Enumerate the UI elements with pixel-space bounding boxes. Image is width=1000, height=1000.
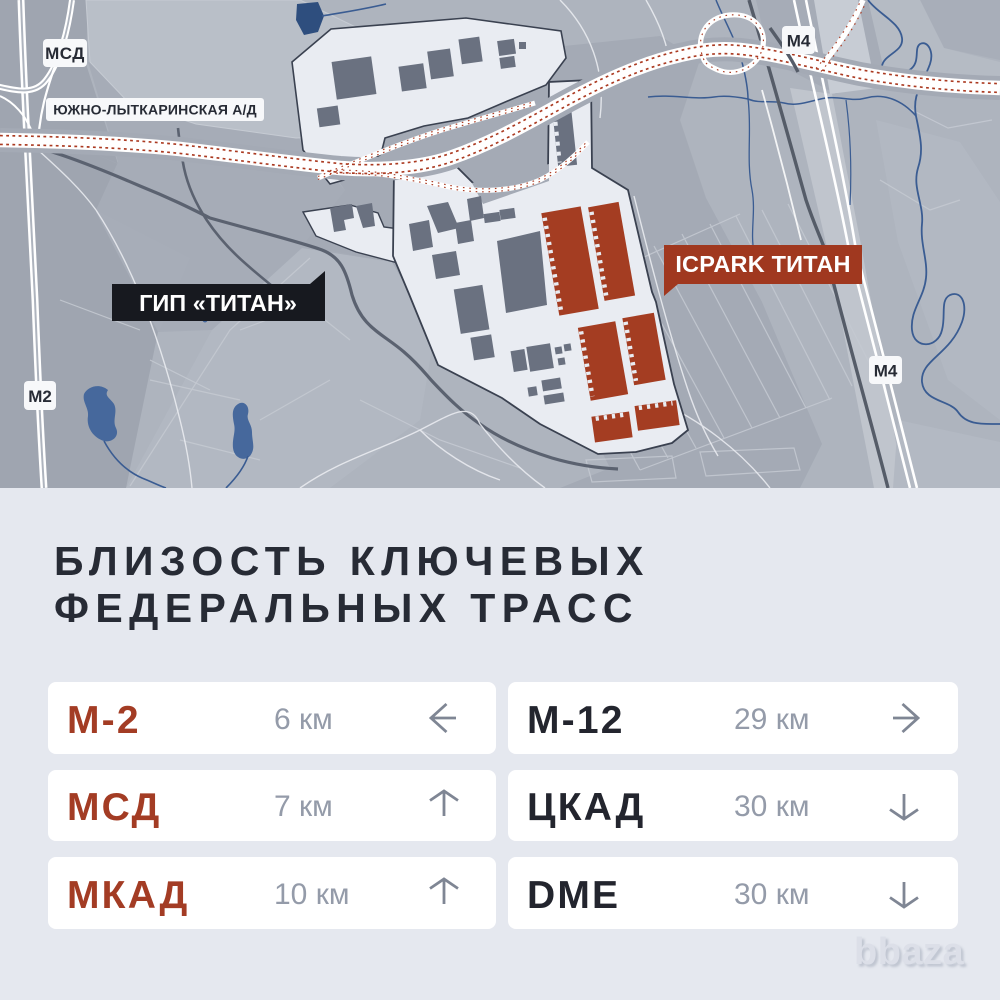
svg-text:М4: М4 <box>874 362 898 381</box>
svg-text:М4: М4 <box>787 32 811 51</box>
svg-text:ICPARK ТИТАН: ICPARK ТИТАН <box>675 251 850 277</box>
svg-text:ЮЖНО-ЛЫТКАРИНСКАЯ А/Д: ЮЖНО-ЛЫТКАРИНСКАЯ А/Д <box>53 102 257 118</box>
svg-text:МСД: МСД <box>45 44 85 63</box>
svg-text:ГИП «ТИТАН»: ГИП «ТИТАН» <box>139 290 297 316</box>
svg-text:М2: М2 <box>28 387 52 406</box>
